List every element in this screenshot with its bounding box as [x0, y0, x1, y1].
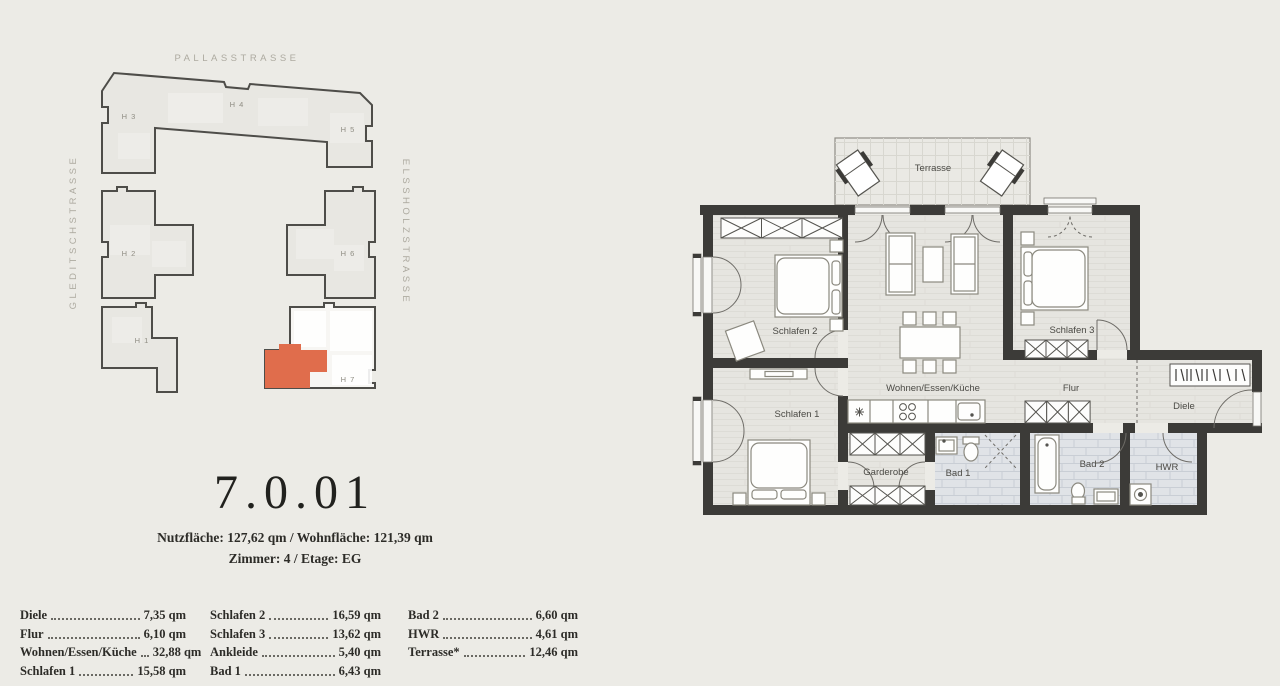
hob-icon [855, 408, 864, 417]
sink [958, 403, 980, 420]
nightstand [812, 493, 825, 505]
list-item: Terrasse*12,46 qm [408, 642, 578, 661]
list-item: Bad 26,60 qm [408, 604, 578, 623]
nightstand [830, 319, 843, 331]
room-label-schlafen3: Schlafen 3 [1050, 325, 1095, 336]
list-item: Ankleide5,40 qm [210, 642, 381, 661]
street-label-top: PALLASSTRASSE [174, 53, 299, 64]
nightstand [830, 240, 843, 252]
room-label-schlafen2: Schlafen 2 [773, 326, 818, 337]
list-item: Flur6,10 qm [20, 623, 186, 642]
coat-rack-icon [1170, 364, 1250, 386]
room-label-terrasse: Terrasse [915, 163, 951, 174]
chair [943, 312, 956, 325]
chair [943, 360, 956, 373]
floorplan-page: PALLASSTRASSE GLEDITSCHSTRASSE ELSSHOLZS… [0, 0, 1280, 686]
house-label-h3: H 3 [122, 112, 137, 121]
room-label-wohnen: Wohnen/Essen/Küche [886, 383, 980, 394]
room-label-garderobe: Garderobe [863, 467, 908, 478]
coffee-table [923, 247, 943, 282]
unit-info-rooms: Zimmer: 4 / Etage: EG [90, 548, 500, 569]
list-item: Schlafen 216,59 qm [210, 604, 381, 623]
chair [923, 360, 936, 373]
site-plan: PALLASSTRASSE GLEDITSCHSTRASSE ELSSHOLZS… [0, 0, 600, 440]
chair [923, 312, 936, 325]
house-label-h5: H 5 [341, 125, 356, 134]
list-item: HWR4,61 qm [408, 623, 578, 642]
unit-number: 7.0.01 [90, 468, 500, 518]
nightstand [1021, 312, 1034, 325]
house-label-h6: H 6 [341, 249, 356, 258]
list-item: Diele7,35 qm [20, 604, 186, 623]
chair [903, 360, 916, 373]
house-label-h4: H 4 [230, 100, 245, 109]
list-item: Bad 16,43 qm [210, 660, 381, 679]
chair [903, 312, 916, 325]
nightstand [733, 493, 746, 505]
street-label-left: GLEDITSCHSTRASSE [68, 155, 79, 310]
list-item: Schlafen 115,58 qm [20, 660, 186, 679]
room-label-bad2: Bad 2 [1080, 459, 1105, 470]
room-label-schlafen1: Schlafen 1 [775, 409, 820, 420]
house-label-h1: H 1 [135, 336, 150, 345]
list-item: Wohnen/Essen/Küche32,88 qm [20, 642, 186, 661]
nightstand [1021, 232, 1034, 245]
street-label-right: ELSSHOLZSTRASSE [400, 159, 411, 305]
house-label-h7: H 7 [341, 375, 356, 384]
floor-plan: Terrasse Schlafen 2 Schlafen 1 Wohnen/Es… [688, 130, 1272, 530]
room-area-list: Diele7,35 qm Flur6,10 qm Wohnen/Essen/Kü… [20, 604, 582, 679]
unit-info-areas: Nutzfläche: 127,62 qm / Wohnfläche: 121,… [90, 527, 500, 548]
room-label-hwr: HWR [1156, 462, 1179, 473]
building-h1 [102, 303, 177, 392]
dining-table [900, 327, 960, 358]
room-label-bad1: Bad 1 [946, 468, 971, 479]
room-label-flur: Flur [1063, 383, 1079, 394]
house-label-h2: H 2 [122, 249, 137, 258]
list-item: Schlafen 313,62 qm [210, 623, 381, 642]
room-label-diele: Diele [1173, 401, 1195, 412]
